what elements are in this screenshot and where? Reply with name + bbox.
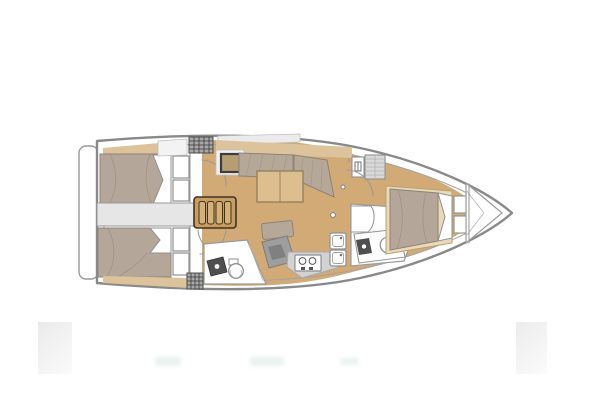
yacht-floor-plan — [0, 0, 600, 400]
stove-knob — [309, 267, 313, 270]
vent-locker — [365, 155, 385, 179]
twin-sinks — [330, 233, 346, 266]
deck-hatch-bottom — [187, 273, 203, 289]
deck-hatch-frame — [221, 154, 241, 172]
cockpit-companionway — [97, 203, 194, 226]
salon-bench — [261, 220, 294, 239]
vberth-mattress — [390, 189, 438, 250]
swim-platform — [79, 146, 98, 279]
corner-artifact-left — [38, 322, 72, 374]
companionway-steps — [194, 197, 236, 228]
floor-plan-image — [0, 0, 600, 400]
watermark-blur-text — [250, 357, 284, 366]
deck-panel — [158, 139, 187, 156]
stove — [295, 255, 321, 271]
watermark-blur-text — [155, 357, 181, 366]
bow-shelf — [454, 196, 467, 213]
stove-knob — [301, 267, 305, 270]
deck-fitting-dot — [331, 213, 336, 218]
bow-shelf — [454, 216, 467, 233]
locker — [173, 228, 189, 251]
locker — [173, 253, 189, 275]
burner — [309, 258, 316, 265]
faucet-dot — [215, 264, 220, 269]
flush-dot — [362, 244, 366, 248]
watermark-blur-text — [340, 358, 359, 365]
door-knob-dot — [341, 185, 345, 189]
locker — [173, 180, 189, 201]
corner-artifact-right — [516, 322, 547, 374]
shower-partition — [351, 206, 374, 232]
locker — [173, 156, 189, 178]
burner — [299, 258, 306, 265]
